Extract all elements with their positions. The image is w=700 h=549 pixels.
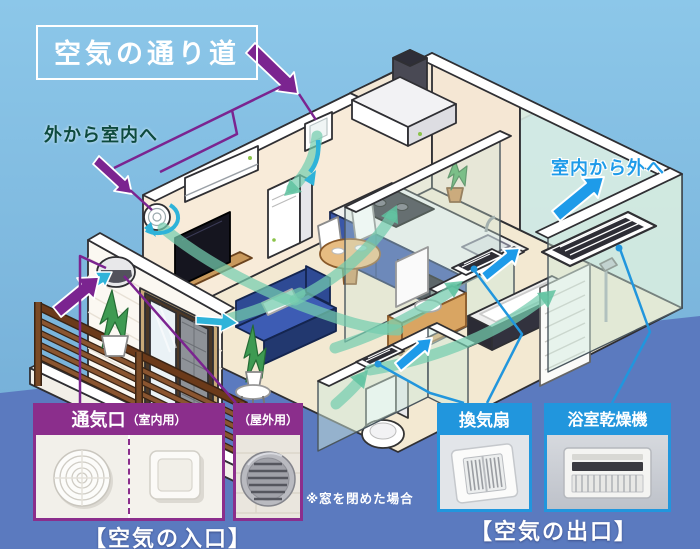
callout-vent-indoor-header: 通気口 （室内用）: [36, 406, 222, 435]
fan-title: 換気扇: [459, 406, 510, 435]
page-title: 空気の通り道: [36, 25, 258, 80]
vent-indoor-photos: [36, 435, 222, 518]
ventilation-fan-photo-icon: [440, 435, 529, 509]
outdoor-vent-photo-icon: [236, 435, 300, 518]
air-path-infographic: 空気の通り道 外から室内へ 室内から外へ ※窓を閉めた場合 通気口 （室内用） …: [0, 0, 700, 549]
outlet-caption: 【空気の出口】: [437, 514, 671, 546]
outdoor-title: （屋外用）: [238, 406, 298, 435]
callout-dryer: 浴室乾燥機: [544, 403, 671, 512]
dryer-title: 浴室乾燥機: [567, 406, 647, 435]
square-vent-photo-icon: [130, 435, 222, 518]
vent-outdoor-photo: [236, 435, 300, 518]
callout-vent-outdoor: （屋外用）: [233, 403, 303, 521]
label-inside-to-outside: 室内から外へ: [551, 154, 665, 180]
label-outside-to-inside: 外から室内へ: [44, 121, 158, 147]
fan-photo: [440, 435, 529, 509]
callout-dryer-header: 浴室乾燥機: [547, 406, 668, 435]
note-window-closed: ※窓を閉めた場合: [306, 488, 414, 507]
callout-vent-outdoor-header: （屋外用）: [236, 406, 300, 435]
callout-fan-header: 換気扇: [440, 406, 529, 435]
bathroom-dryer-photo-icon: [547, 435, 668, 509]
callout-fan: 換気扇: [437, 403, 532, 512]
vent-title: 通気口: [71, 406, 125, 435]
round-vent-photo-icon: [36, 435, 128, 518]
vent-subtitle: （室内用）: [126, 406, 186, 435]
inlet-caption: 【空気の入口】: [33, 521, 303, 549]
dryer-photo: [547, 435, 668, 509]
callout-vent-indoor: 通気口 （室内用）: [33, 403, 225, 521]
